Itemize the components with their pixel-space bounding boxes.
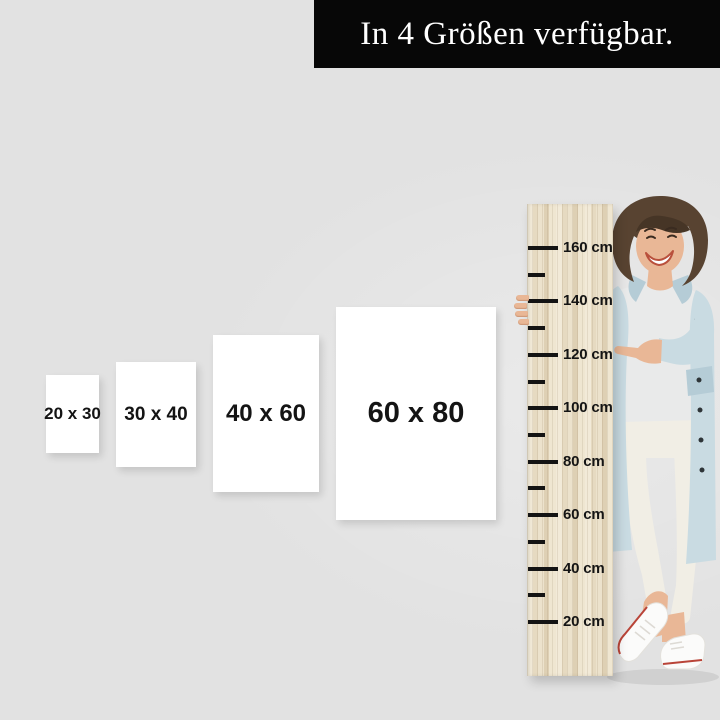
size-label-40x60: 40 x 60 [226, 400, 306, 428]
fingertip [516, 295, 529, 301]
tick-line [528, 380, 545, 384]
tick-line [528, 246, 558, 250]
tick-line [528, 353, 558, 357]
fingertip [518, 319, 529, 325]
fingertip [514, 303, 527, 309]
tick-line [528, 486, 545, 490]
tick-line [528, 273, 545, 277]
tick-line [528, 513, 558, 517]
tick-line [528, 460, 558, 464]
tick-line [528, 567, 558, 571]
tick-line [528, 540, 545, 544]
size-option-20x30: 20 x 30 [46, 375, 99, 453]
size-option-40x60: 40 x 60 [213, 335, 319, 492]
size-option-30x40: 30 x 40 [116, 362, 196, 467]
tick-label: 120 cm [563, 346, 613, 363]
availability-banner: In 4 Größen verfügbar. [314, 0, 720, 68]
fingertip [515, 311, 528, 317]
tick-label: 20 cm [563, 613, 605, 630]
height-ruler: 160 cm140 cm120 cm100 cm80 cm60 cm40 cm2… [527, 204, 613, 676]
tick-line [528, 406, 558, 410]
tick-line [528, 433, 545, 437]
tick-label: 80 cm [563, 453, 605, 470]
size-label-60x80: 60 x 80 [368, 397, 465, 430]
tick-label: 100 cm [563, 399, 613, 416]
tick-line [528, 326, 545, 330]
size-guide-graphic: In 4 Größen verfügbar. 20 x 30 30 x 40 4… [0, 0, 720, 720]
size-label-20x30: 20 x 30 [44, 404, 101, 424]
size-label-30x40: 30 x 40 [124, 404, 187, 426]
tick-label: 40 cm [563, 560, 605, 577]
tick-line [528, 620, 558, 624]
floor-shadow [607, 669, 719, 685]
tick-label: 60 cm [563, 506, 605, 523]
tick-line [528, 593, 545, 597]
gripping-hand [516, 295, 529, 327]
tick-line [528, 299, 558, 303]
tick-label: 140 cm [563, 293, 613, 310]
banner-text: In 4 Größen verfügbar. [360, 16, 673, 53]
person-hips [620, 418, 702, 458]
size-option-60x80: 60 x 80 [336, 307, 496, 520]
tick-label: 160 cm [563, 239, 613, 256]
